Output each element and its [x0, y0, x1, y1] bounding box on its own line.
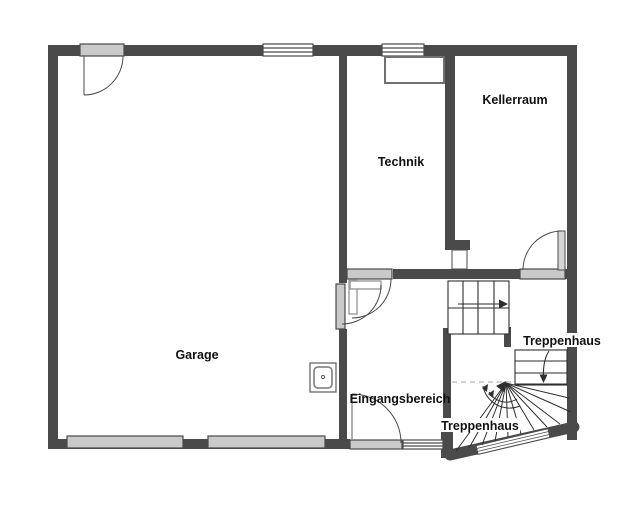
garage-door-2-icon — [208, 436, 325, 448]
room-label-treppenhaus-1: Treppenhaus — [523, 334, 601, 348]
window-technik-top-icon — [382, 44, 424, 56]
wall-technik-keller-cap — [445, 240, 470, 250]
door-kellerraum-icon — [520, 231, 565, 279]
window-entrance-bottom-icon — [403, 440, 443, 449]
garage-door-1-icon — [67, 436, 183, 448]
room-label-eingangsbereich: Eingangsbereich — [350, 392, 451, 406]
garage-drain-icon — [310, 363, 336, 392]
wall-mid-b — [565, 269, 577, 279]
stairs-upper-flight-icon — [448, 281, 509, 334]
technik-shelf-outline — [385, 57, 444, 83]
windows — [263, 44, 443, 449]
window-garage-top-icon — [263, 44, 313, 56]
door-garage-top-icon — [80, 44, 124, 95]
wall-garage-divider-upper — [339, 56, 347, 283]
room-label-technik: Technik — [378, 155, 424, 169]
stairs-lower-flight-icon — [515, 350, 567, 385]
room-label-kellerraum: Kellerraum — [482, 93, 547, 107]
wall-garage-divider-lower — [339, 329, 347, 439]
wall-right — [567, 45, 577, 440]
wall-left — [48, 45, 58, 449]
door-garage-entrance-icon — [336, 281, 381, 329]
divider-niche — [452, 250, 467, 269]
floor-plan-canvas: Garage Technik Kellerraum Eingangsbereic… — [0, 0, 628, 516]
wall-technik-keller-divider — [445, 56, 455, 240]
room-label-treppenhaus-2: Treppenhaus — [441, 419, 519, 433]
wall-mid-a — [393, 269, 520, 279]
room-label-garage: Garage — [175, 348, 218, 362]
door-technik-icon — [347, 269, 392, 318]
floor-plan: Garage Technik Kellerraum Eingangsbereic… — [0, 0, 628, 516]
